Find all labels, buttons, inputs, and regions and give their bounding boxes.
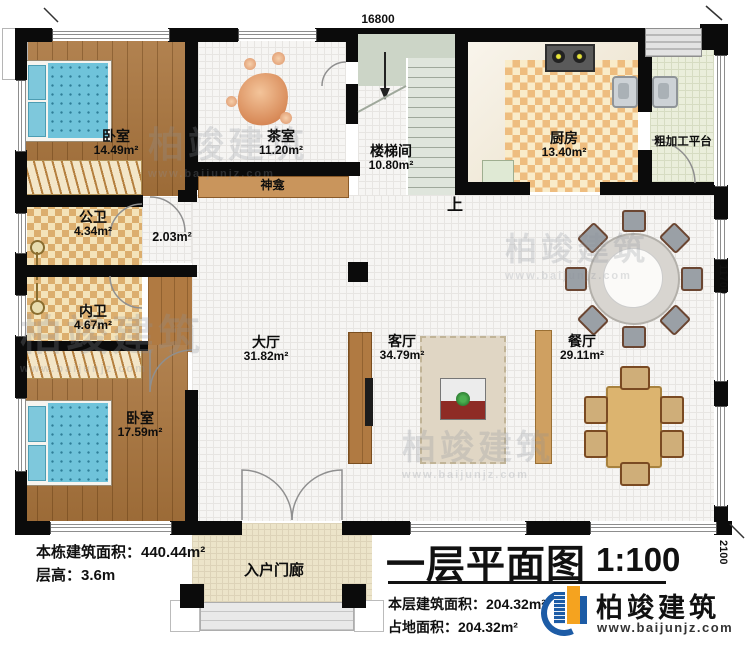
room-name: 入户门廊 [244,562,304,579]
floor-plan-canvas: 卧室 14.49m² 茶室 11.20m² 神龛 楼梯间 10.80m² 上 厨… [0,0,750,648]
room-name: 公卫 [43,209,143,225]
room-name: 客厅 [352,333,452,349]
room-label-public-bath: 公卫 4.34m² [43,209,143,239]
stair-direction-arrow [358,52,406,112]
room-label-hall: 大厅 31.82m² [216,334,316,364]
room-label-shrine: 神龛 [198,179,347,193]
room-name: 神龛 [260,178,284,192]
room-area: 14.49m² [66,144,166,158]
room-label-kitchen: 厨房 13.40m² [514,130,614,160]
room-label-bedroom2: 卧室 17.59m² [90,410,190,440]
dimension-right: 11700 [717,264,729,294]
room-name: 厨房 [514,130,614,146]
watermark: 柏竣建筑 www.baijunjz.com [505,224,649,282]
ground-area-text: 占地面积：204.32m² [388,617,518,637]
logo-building-small [580,596,587,624]
room-area: 10.80m² [341,159,441,173]
room-area: 17.59m² [90,426,190,440]
stair-up-label: 上 [440,197,470,215]
room-label-bedroom1: 卧室 14.49m² [66,128,166,158]
entry-door-right [292,470,342,520]
floor-height-text: 层高：3.6m [36,564,115,585]
room-name: 餐厅 [532,333,632,349]
building-area-text: 本栋建筑面积：440.44m² [36,541,205,562]
room-label-corridor: 2.03m² [132,230,212,244]
room-label-living: 客厅 34.79m² [352,333,452,363]
floor-area-text: 本层建筑面积：204.32m² [388,594,546,614]
room-area: 4.67m² [43,319,143,333]
room-label-tea: 茶室 11.20m² [231,128,331,158]
title-underline [388,581,666,584]
room-area: 11.20m² [231,144,331,158]
room-name: 内卫 [43,303,143,319]
room-label-dining: 餐厅 29.11m² [532,333,632,363]
plan-scale: 1:100 [596,541,680,579]
room-name: 粗加工平台 [654,136,712,148]
room-area: 29.11m² [532,349,632,363]
dimension-top: 16800 [338,12,418,26]
room-name: 楼梯间 [341,143,441,159]
logo-building-orange [567,586,580,624]
room-label-platform: 粗加工平台 [628,136,738,149]
room-area: 13.40m² [514,146,614,160]
watermark: 柏竣建筑 www.baijunjz.com [402,420,554,481]
brand-url: www.baijunjz.com [597,620,733,635]
room-label-inner-bath: 内卫 4.67m² [43,303,143,333]
dimension-right-lower: 2100 [717,540,729,564]
room-label-porch: 入户门廊 [204,562,344,579]
room-area: 31.82m² [216,350,316,364]
entry-door-left [242,470,292,520]
room-name: 卧室 [66,128,166,144]
room-label-stair: 楼梯间 10.80m² [341,143,441,173]
logo-building-blue [554,592,565,624]
room-area: 2.03m² [152,230,192,244]
room-area: 34.79m² [352,349,452,363]
room-name: 茶室 [231,128,331,144]
brand-logo-icon [540,584,592,638]
room-area: 4.34m² [43,225,143,239]
room-name: 卧室 [90,410,190,426]
room-name: 大厅 [216,334,316,350]
